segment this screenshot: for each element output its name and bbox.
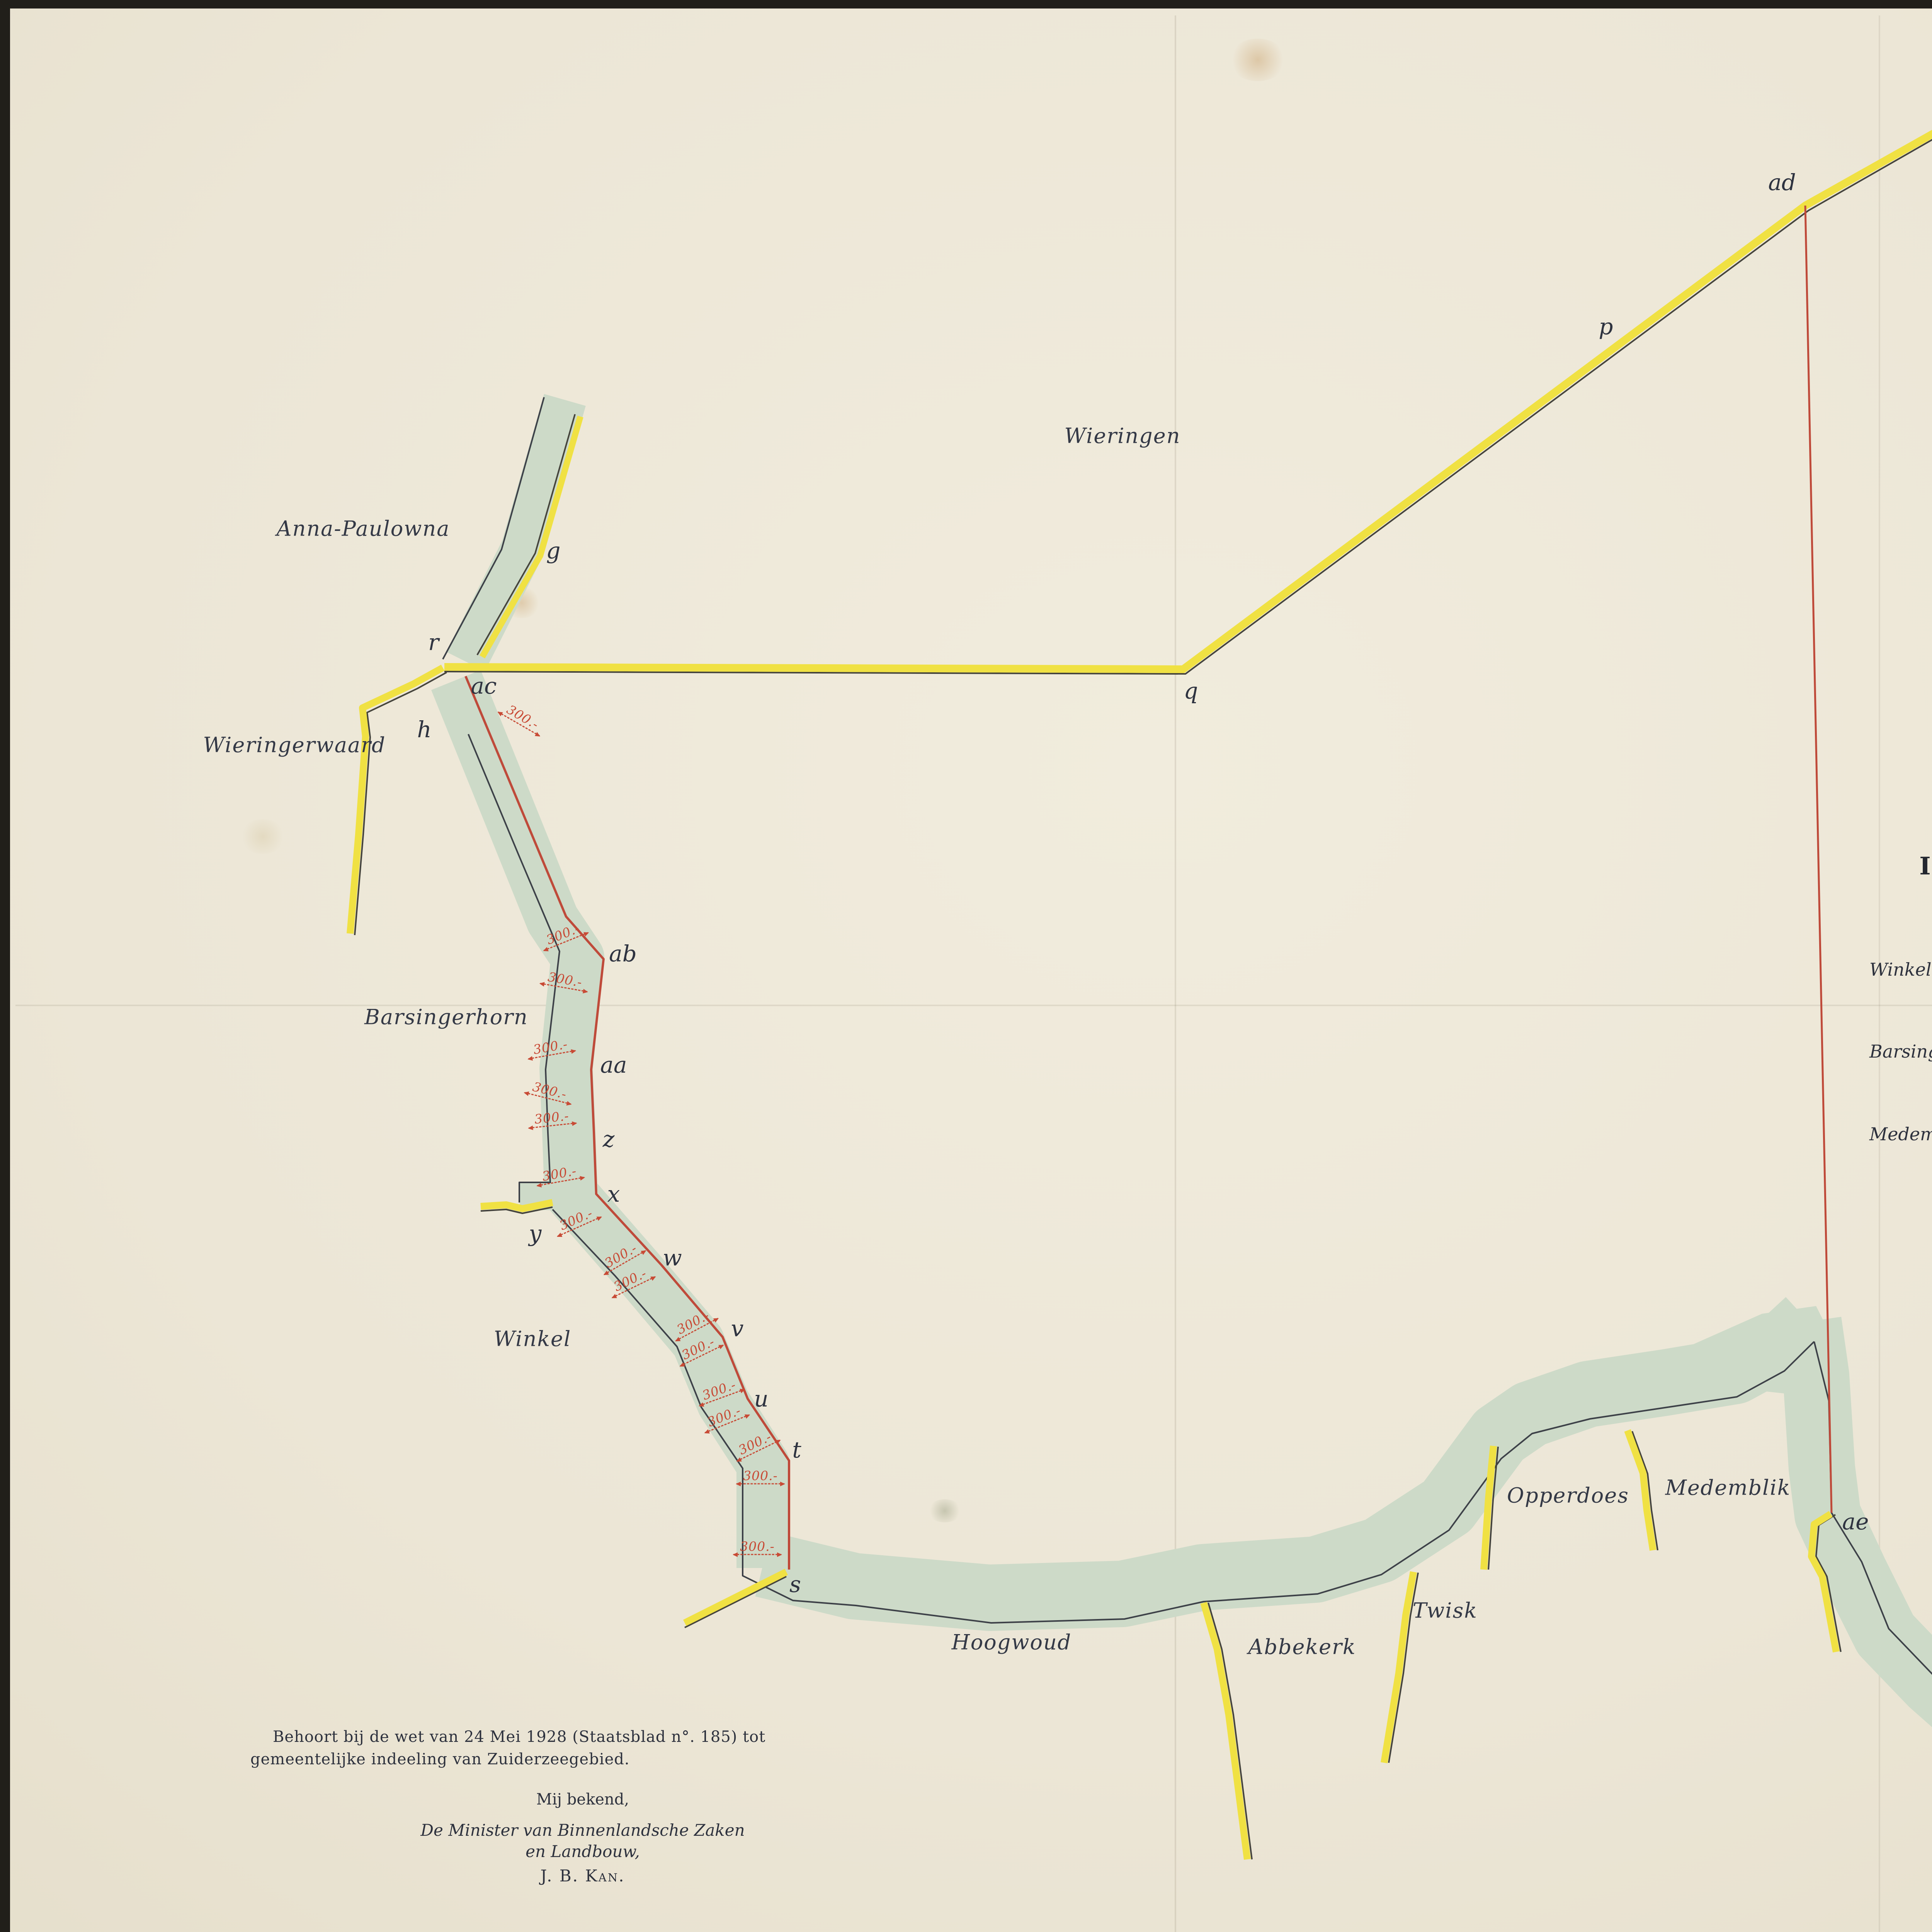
attribution-signature: J. B. Kan. — [250, 1866, 915, 1885]
point-marker-y: y — [529, 1220, 542, 1247]
place-label-hoogwoud: Hoogwoud — [952, 1630, 1072, 1655]
point-marker-s: s — [789, 1571, 801, 1597]
place-label-twisk: Twisk — [1413, 1599, 1478, 1623]
point-marker-p: p — [1599, 313, 1613, 340]
place-label-winkel: Winkel — [494, 1327, 571, 1351]
attribution-line: en Landbouw, — [250, 1842, 915, 1861]
map-sheet: Indeeling van Zuiderzeegebied bij de gem… — [0, 0, 1932, 1932]
place-label-wieringerwaard: Wieringerwaard — [203, 733, 386, 757]
point-marker-w: w — [663, 1245, 682, 1271]
point-marker-ab: ab — [609, 940, 637, 967]
map-title-line2: bij de gemeenten: — [1893, 883, 1932, 917]
attribution-line: Behoort bij de wet van 24 Mei 1928 (Staa… — [273, 1728, 915, 1746]
canal-band — [456, 400, 1932, 1762]
point-marker-u: u — [754, 1386, 768, 1412]
point-marker-ac: ac — [471, 673, 497, 699]
point-marker-v: v — [731, 1315, 744, 1342]
point-marker-g: g — [546, 537, 560, 564]
point-marker-z: z — [603, 1126, 615, 1152]
legend-entry-barsingerhorn-name: Barsingerhorn: — [1869, 1041, 1932, 1062]
attribution-block: Behoort bij de wet van 24 Mei 1928 (Staa… — [250, 1728, 915, 1885]
point-marker-x: x — [607, 1181, 620, 1207]
point-marker-aa: aa — [600, 1052, 627, 1078]
legend-entry-winkel-name: Winkel: — [1869, 959, 1932, 980]
place-label-abbekerk: Abbekerk — [1248, 1635, 1356, 1659]
legend-entry-medemblik-name: Medemblik: — [1869, 1124, 1932, 1145]
point-marker-r: r — [428, 629, 439, 655]
attribution-line: Mij bekend, — [250, 1791, 915, 1808]
map-title: Indeeling van Zuiderzeegebied bij de gem… — [1893, 849, 1932, 917]
place-label-opperdoes: Opperdoes — [1507, 1483, 1629, 1508]
attribution-line: De Minister van Binnenlandsche Zaken — [250, 1821, 915, 1840]
place-label-wieringen: Wieringen — [1065, 424, 1181, 448]
attribution-line: gemeentelijke indeeling van Zuiderzeegeb… — [250, 1750, 915, 1768]
map-title-line1: Indeeling van Zuiderzeegebied — [1893, 849, 1932, 883]
place-label-anna-paulowna: Anna-Paulowna — [277, 517, 450, 541]
point-marker-q: q — [1184, 678, 1198, 704]
point-marker-t: t — [792, 1437, 801, 1463]
point-marker-h: h — [417, 716, 431, 743]
point-marker-ae: ae — [1842, 1509, 1869, 1535]
place-label-medemblik: Medemblik — [1665, 1476, 1791, 1500]
point-marker-ad: ad — [1768, 169, 1796, 196]
place-label-barsingerhorn: Barsingerhorn — [364, 1005, 528, 1029]
